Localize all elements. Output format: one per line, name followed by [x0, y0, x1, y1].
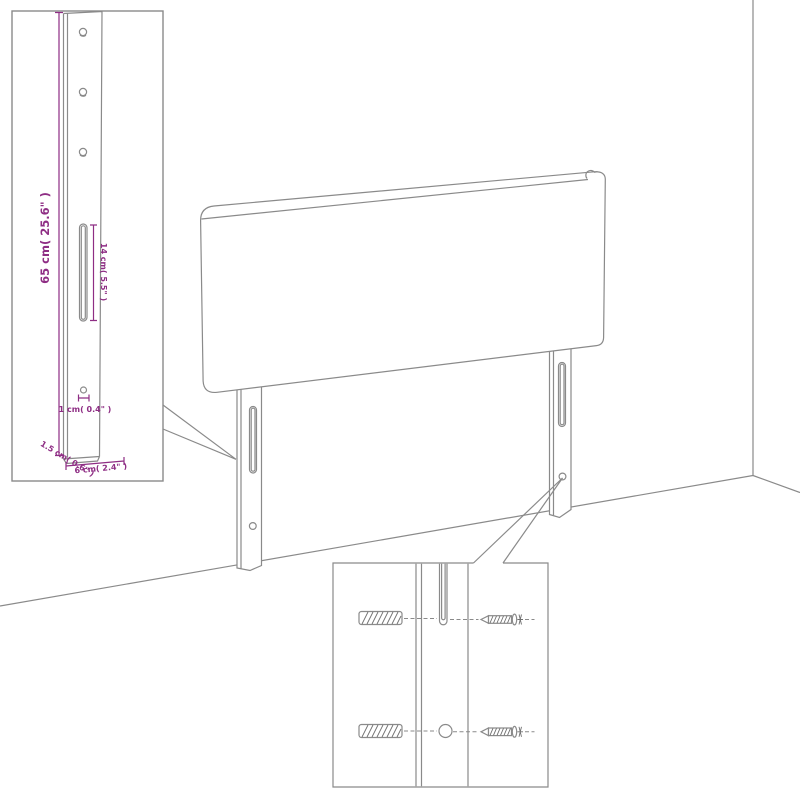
- panel-outline: [201, 172, 606, 393]
- screw-top: [481, 614, 523, 625]
- fastener-inset-fill: [333, 563, 548, 787]
- floor-line-right: [753, 476, 800, 493]
- wall-plug-bottom: [359, 725, 402, 738]
- headboard-panel: [201, 170, 606, 392]
- wall-plug-top: [359, 612, 402, 625]
- fastener-callout-line-left: [474, 478, 563, 563]
- headboard-right-leg: [550, 338, 572, 518]
- bracket-callout-line-lower: [163, 429, 236, 459]
- screw-bottom-head: [512, 726, 516, 737]
- label-bracket-height: 65 cm( 25.6" ): [38, 192, 52, 284]
- label-hole-diameter: 1 cm( 0.4" ): [59, 405, 112, 414]
- headboard-left-leg: [237, 383, 262, 571]
- label-slot-length: 14 cm( 5.5" ): [99, 243, 108, 301]
- fastener-detail-inset: [333, 478, 563, 787]
- assembly-diagram: 65 cm( 25.6" ) 14 cm( 5.5" ) 1 cm( 0.4" …: [0, 0, 800, 800]
- screw-bottom: [481, 726, 523, 737]
- screw-top-head: [512, 614, 516, 625]
- bracket-callout-line-upper: [163, 405, 236, 459]
- fastener-callout-line-right: [503, 478, 563, 563]
